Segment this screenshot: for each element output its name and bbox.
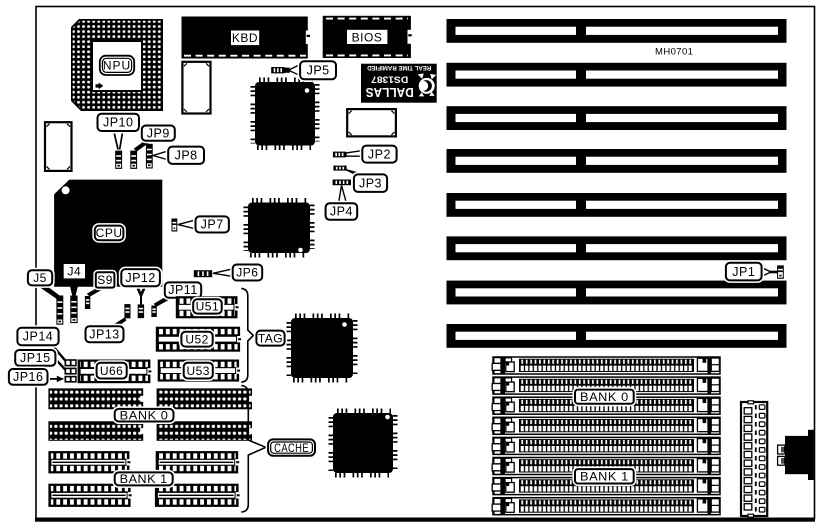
svg-text:JP6: JP6: [236, 266, 258, 280]
svg-text:BANK 0: BANK 0: [120, 410, 169, 422]
svg-text:JP8: JP8: [175, 148, 198, 162]
svg-text:CPU: CPU: [96, 226, 123, 240]
svg-text:DS1387: DS1387: [371, 74, 408, 84]
svg-text:KBD: KBD: [232, 31, 258, 45]
svg-text:DALLAS: DALLAS: [366, 85, 414, 99]
svg-text:BANK 1: BANK 1: [120, 474, 168, 486]
svg-text:JP14: JP14: [23, 330, 54, 344]
svg-text:JP3: JP3: [359, 176, 382, 190]
svg-text:BIOS: BIOS: [352, 30, 383, 44]
svg-text:REAL TIME RAMIFIED: REAL TIME RAMIFIED: [367, 64, 432, 70]
svg-text:U66: U66: [100, 364, 124, 378]
svg-text:JP16: JP16: [13, 370, 44, 384]
svg-text:JP15: JP15: [20, 351, 51, 365]
svg-text:JP11: JP11: [168, 283, 198, 297]
svg-text:U53: U53: [186, 364, 210, 378]
svg-text:JP9: JP9: [147, 126, 170, 140]
svg-text:MH0701: MH0701: [655, 47, 693, 58]
svg-text:JP7: JP7: [201, 218, 224, 232]
svg-text:J5: J5: [33, 271, 47, 285]
svg-text:TAG: TAG: [258, 331, 283, 345]
svg-text:JP12: JP12: [125, 271, 156, 285]
svg-text:JP2: JP2: [368, 147, 391, 161]
svg-text:JP10: JP10: [103, 116, 134, 130]
svg-text:JP13: JP13: [89, 327, 120, 341]
svg-text:U52: U52: [185, 332, 209, 346]
svg-text:JP5: JP5: [307, 64, 330, 78]
svg-text:JP4: JP4: [330, 205, 353, 219]
svg-text:BANK 1: BANK 1: [580, 472, 629, 484]
svg-text:JP1: JP1: [732, 265, 755, 279]
svg-text:J4: J4: [67, 265, 81, 279]
svg-text:BANK 0: BANK 0: [580, 392, 629, 404]
svg-text:U51: U51: [196, 300, 220, 314]
svg-text:CACHE: CACHE: [274, 441, 309, 455]
svg-text:NPU: NPU: [103, 59, 131, 73]
svg-text:S9: S9: [97, 273, 113, 287]
